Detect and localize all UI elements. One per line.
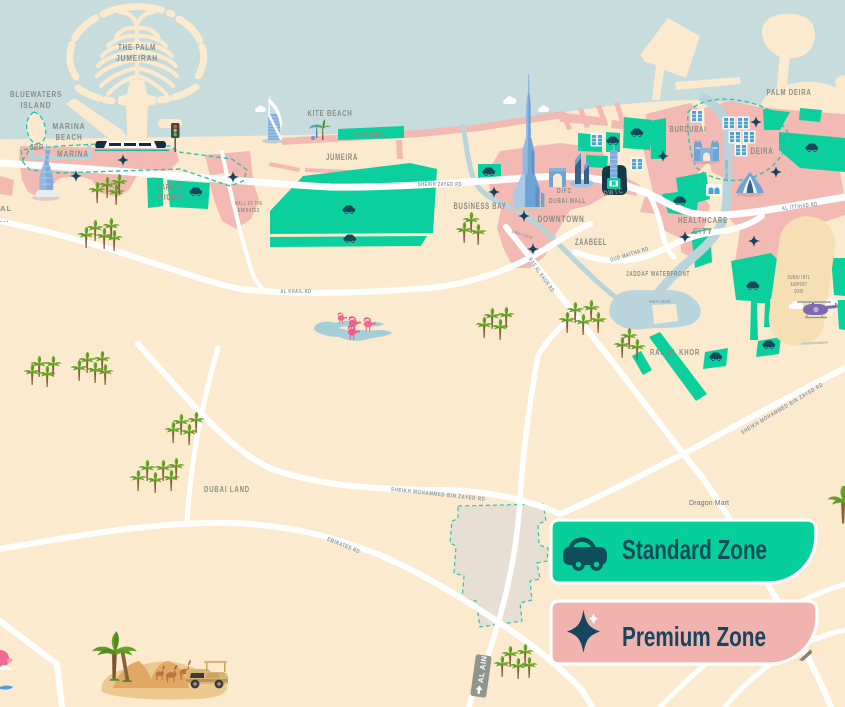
svg-text:ISLAND: ISLAND <box>21 100 52 110</box>
svg-text:DXB: DXB <box>795 289 804 295</box>
svg-text:ZAABEEL: ZAABEEL <box>575 236 607 247</box>
svg-text:AL: AL <box>0 204 12 213</box>
svg-text:PALM DEIRA: PALM DEIRA <box>767 87 812 97</box>
svg-text:CITY: CITY <box>693 226 713 236</box>
svg-text:RAS AL KHOR: RAS AL KHOR <box>650 347 700 357</box>
svg-text:JUMEIRA: JUMEIRA <box>326 151 358 162</box>
svg-text:DEIRA: DEIRA <box>751 145 774 156</box>
svg-text:...: ... <box>0 215 10 224</box>
svg-text:DUBAI MALL: DUBAI MALL <box>549 196 586 205</box>
svg-text:BEACH: BEACH <box>56 132 83 142</box>
svg-text:JBR: JBR <box>30 143 44 152</box>
svg-text:MARINA: MARINA <box>53 121 86 131</box>
svg-text:JADDAF WATERFRONT: JADDAF WATERFRONT <box>626 269 690 278</box>
svg-text:DOWNTOWN: DOWNTOWN <box>538 213 585 224</box>
svg-text:BLUEWATERS: BLUEWATERS <box>10 89 62 99</box>
svg-text:JUMEIRA: JUMEIRA <box>355 130 386 139</box>
svg-text:DUBAI CREEK: DUBAI CREEK <box>649 299 671 304</box>
svg-text:DUBAI INTL: DUBAI INTL <box>788 275 811 281</box>
svg-text:DUBAI CREEK: DUBAI CREEK <box>724 159 729 181</box>
svg-text:HEALTHCARE: HEALTHCARE <box>678 215 728 225</box>
svg-text:BARSHA: BARSHA <box>157 183 183 192</box>
svg-text:KITE BEACH: KITE BEACH <box>308 108 353 118</box>
svg-text:AIRPORT: AIRPORT <box>791 282 808 288</box>
svg-text:Standard Zone: Standard Zone <box>622 534 767 565</box>
svg-text:SHEIKH ZAYED RD: SHEIKH ZAYED RD <box>418 182 462 188</box>
svg-text:BURDUBAI: BURDUBAI <box>670 124 707 134</box>
svg-text:AL KHAIL RD: AL KHAIL RD <box>281 289 312 295</box>
svg-text:JUMEIRAH: JUMEIRAH <box>116 53 158 63</box>
svg-text:HEIGHTS: HEIGHTS <box>155 193 186 202</box>
svg-text:THE PALM: THE PALM <box>118 42 156 52</box>
svg-text:Dragon Mart: Dragon Mart <box>689 498 729 507</box>
svg-text:Premium Zone: Premium Zone <box>622 621 766 652</box>
svg-text:DIFC: DIFC <box>557 188 572 195</box>
svg-text:MARINA: MARINA <box>57 148 89 159</box>
svg-text:BUSINESS BAY: BUSINESS BAY <box>454 200 507 211</box>
svg-text:MALL OF THE: MALL OF THE <box>235 201 263 207</box>
svg-text:EMIRATES: EMIRATES <box>238 208 260 214</box>
svg-text:DUBAI LAND: DUBAI LAND <box>204 485 250 494</box>
